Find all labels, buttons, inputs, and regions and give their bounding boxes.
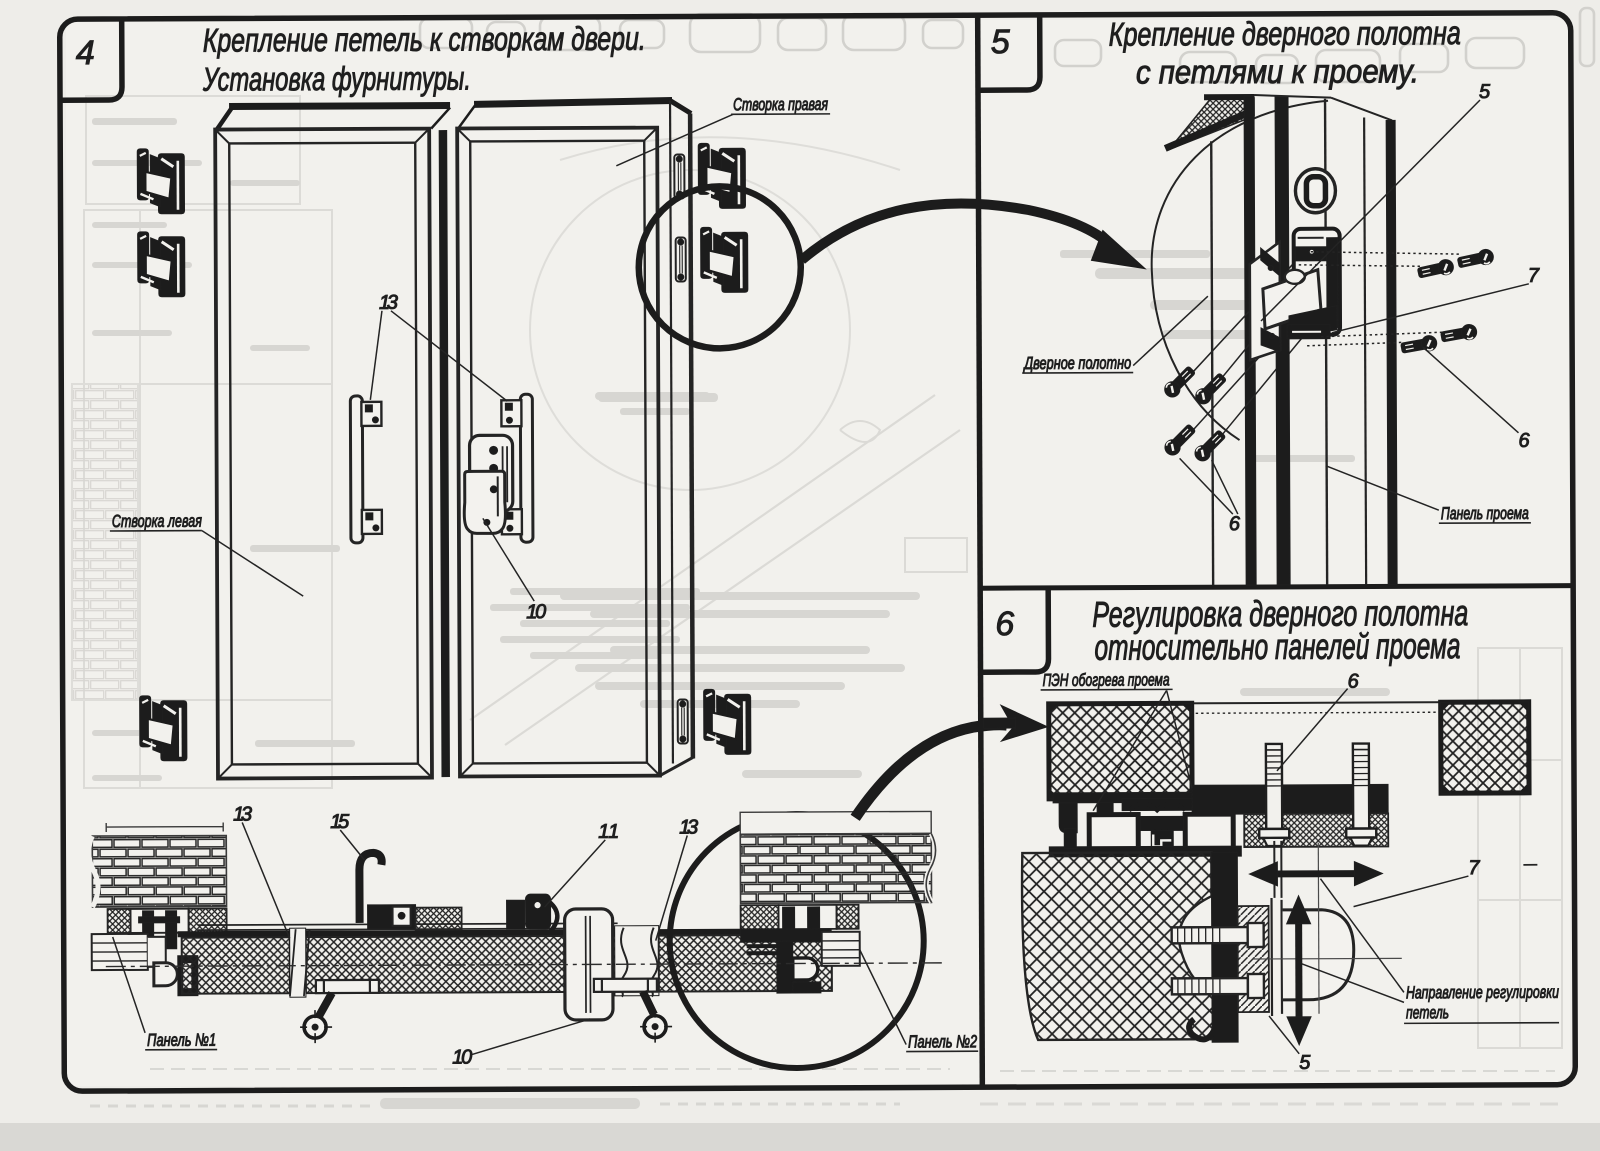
svg-text:13: 13 xyxy=(379,292,398,314)
svg-text:петель: петель xyxy=(1406,1002,1449,1022)
svg-text:4: 4 xyxy=(76,34,95,72)
svg-text:Панель №2: Панель №2 xyxy=(908,1031,977,1051)
svg-text:10: 10 xyxy=(452,1046,472,1068)
svg-text:относительно панелей проема: относительно панелей проема xyxy=(1094,625,1460,668)
svg-text:Панель проема: Панель проема xyxy=(1441,503,1529,523)
svg-text:11: 11 xyxy=(598,821,619,843)
svg-text:15: 15 xyxy=(330,811,350,833)
svg-text:6: 6 xyxy=(1348,671,1360,693)
svg-text:6: 6 xyxy=(1518,430,1530,452)
svg-text:7: 7 xyxy=(1468,857,1480,879)
svg-text:13: 13 xyxy=(233,803,252,825)
svg-text:Крепление дверного полотна: Крепление дверного полотна xyxy=(1109,14,1461,53)
svg-text:5: 5 xyxy=(1479,81,1491,103)
svg-text:Панель №1: Панель №1 xyxy=(147,1030,216,1050)
svg-text:ПЭН обогрева проема: ПЭН обогрева проема xyxy=(1043,669,1170,690)
svg-text:Установка фурнитуры.: Установка фурнитуры. xyxy=(202,59,471,97)
svg-text:Створка левая: Створка левая xyxy=(112,511,202,531)
svg-text:6: 6 xyxy=(1229,513,1241,535)
svg-text:10: 10 xyxy=(526,601,546,623)
svg-text:Створка правая: Створка правая xyxy=(733,94,828,114)
svg-text:Дверное полотно: Дверное полотно xyxy=(1023,353,1132,373)
svg-text:5: 5 xyxy=(1299,1052,1311,1074)
svg-text:6: 6 xyxy=(995,605,1014,643)
svg-text:13: 13 xyxy=(679,816,698,838)
svg-text:Направление регулировки: Направление регулировки xyxy=(1406,982,1559,1003)
svg-text:с петлями к проему.: с петлями к проему. xyxy=(1136,52,1419,90)
svg-text:Крепление петель к створкам дв: Крепление петель к створкам двери. xyxy=(203,20,646,59)
svg-text:7: 7 xyxy=(1528,265,1540,287)
svg-text:5: 5 xyxy=(991,23,1010,61)
